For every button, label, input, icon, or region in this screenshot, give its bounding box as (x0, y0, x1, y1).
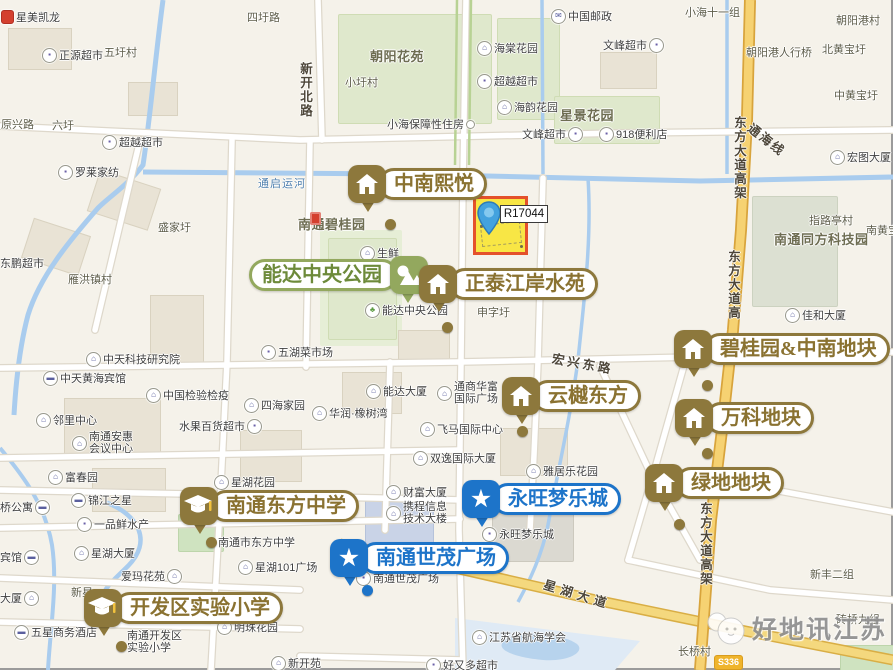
map-poi-label: ⌂海棠花园 (477, 40, 538, 56)
shop-icon: ▪ (77, 517, 92, 532)
building-icon: ⌂ (72, 436, 87, 451)
callout-nengda-central-park[interactable]: 能达中央公园 (249, 256, 428, 294)
callout-yunyue-dongfang[interactable]: 云樾东方 (502, 377, 641, 415)
map-poi-label: 小圩村 (345, 74, 378, 90)
callout-anchor-dot[interactable] (702, 448, 713, 459)
map-poi-label: ▪好又多超市 (426, 657, 498, 670)
callout-label: 正泰江岸水苑 (449, 268, 598, 300)
map-poi-label: ⌂携程信息技术大楼 (386, 502, 447, 525)
callout-label: 万科地块 (705, 402, 814, 434)
hotel-icon: ▬ (43, 371, 58, 386)
building-icon: ⌂ (472, 630, 487, 645)
map-poi-label: ⌂财富大厦 (386, 484, 447, 500)
map-poi-label: 原兴路 (1, 116, 34, 132)
red-icon (1, 10, 14, 24)
callout-yongwang-mengle-cheng[interactable]: ★永旺梦乐城 (462, 480, 621, 518)
road-name-label: 东方大道高 (728, 250, 741, 320)
map-poi-label: 申字圩 (477, 304, 510, 320)
shop-icon: ▪ (426, 658, 441, 670)
callout-label: 中南熙悦 (378, 168, 487, 200)
building-icon: ⌂ (24, 591, 39, 606)
watermark: 好地讯江苏 (704, 610, 887, 646)
map-area-label: 星景花园 (560, 105, 614, 124)
map-poi-label: ⌂双逸国际大厦 (413, 450, 496, 466)
map-poi-label: 四圩路 (247, 9, 280, 25)
callout-anchor-dot[interactable] (116, 641, 127, 652)
map-poi-label: ⌂富春园 (48, 469, 98, 485)
map-poi-label: ⌂宏图大厦 (830, 149, 891, 165)
building-icon: ⌂ (386, 506, 401, 521)
parcel-id-label: R17044 (500, 205, 548, 223)
map-poi-label: 雁洪镇村 (68, 271, 112, 287)
map-poi-label: 小海保障性住房 (387, 116, 475, 132)
map-poi-label: ⌂海韵花园 (497, 99, 558, 115)
building-icon: ⌂ (271, 656, 286, 670)
house-icon (502, 377, 540, 415)
callout-anchor-dot[interactable] (517, 426, 528, 437)
map-poi-label: ⌂江苏省航海学会 (472, 629, 566, 645)
map-poi-label: ⌂通商华富国际广场 (437, 382, 498, 405)
callout-nantong-dongfang-zhongxue[interactable]: 南通东方中学 (180, 487, 359, 525)
map-poi-label: 文峰超市▪ (522, 126, 583, 142)
road-name-label: 新开北路 (300, 62, 313, 118)
building-icon: ⌂ (830, 150, 845, 165)
map-poi-label: 小海十一组 (685, 4, 740, 20)
map-poi-label: ⌂雅居乐花园 (526, 463, 598, 479)
building-icon: ⌂ (312, 406, 327, 421)
building-icon: ⌂ (477, 41, 492, 56)
callout-anchor-dot[interactable] (362, 585, 373, 596)
building-icon: ⌂ (244, 398, 259, 413)
road-name-label: 东方大道高架 (700, 502, 713, 586)
map-poi-label: 朝阳港村 (836, 12, 880, 28)
map-poi-label: 中黄宝圩 (834, 87, 878, 103)
hotel-icon: ▬ (24, 550, 39, 565)
building-icon: ⌂ (386, 485, 401, 500)
building-icon: ⌂ (526, 464, 541, 479)
map-poi-label: ▬锦江之星 (71, 492, 132, 508)
house-icon (348, 165, 386, 203)
callout-anchor-dot[interactable] (674, 519, 685, 530)
building-icon: ⌂ (413, 451, 428, 466)
building-icon: ⌂ (420, 422, 435, 437)
map-poi-label: ▪超越超市 (477, 73, 538, 89)
map-poi-label: ⌂新开苑 (271, 655, 321, 670)
location-pin-icon[interactable] (477, 201, 501, 235)
map-poi-label: 桥公寓▬ (0, 499, 50, 515)
building-icon: ⌂ (36, 413, 51, 428)
graduation-cap-icon (84, 589, 122, 627)
star-icon: ★ (330, 539, 368, 577)
map-area-label: 朝阳花苑 (370, 46, 424, 65)
shop-icon: ▪ (477, 74, 492, 89)
building-icon: ⌂ (238, 560, 253, 575)
callout-zhengtai-jiangan-shuiyuan[interactable]: 正泰江岸水苑 (419, 265, 598, 303)
callout-anchor-dot[interactable] (385, 219, 396, 230)
map-poi-label: ⌂飞马国际中心 (420, 421, 503, 437)
building-icon: ⌂ (785, 308, 800, 323)
map-canvas[interactable]: R17044 S336 好地讯江苏 星美凯龙▪正源超市五圩村四圩路原兴路六圩▪超… (0, 0, 893, 670)
house-icon (419, 265, 457, 303)
callout-label: 南通世茂广场 (360, 542, 509, 574)
map-poi-label: ⌂佳和大厦 (785, 307, 846, 323)
building-icon: ⌂ (366, 384, 381, 399)
building-icon: ⌂ (74, 546, 89, 561)
map-poi-label: 南通市东方中学 (218, 534, 295, 550)
shop-icon: ▪ (102, 135, 117, 150)
map-poi-label: 盛家圩 (158, 219, 191, 235)
map-poi-label: ⌂南通安惠会议中心 (72, 432, 133, 455)
map-poi-label: 东鹏超市 (0, 255, 44, 271)
map-poi-label: ▪五湖菜市场 (261, 344, 333, 360)
callout-zhongnan-xiyue[interactable]: 中南熙悦 (348, 165, 487, 203)
star-icon: ★ (462, 480, 500, 518)
map-poi-label: ⌂四海家园 (244, 397, 305, 413)
callout-anchor-dot[interactable] (702, 380, 713, 391)
map-poi-label: ⌂邻里中心 (36, 412, 97, 428)
map-poi-label: 五圩村 (104, 44, 137, 60)
map-poi-label: ▪一品鲜水产 (77, 516, 149, 532)
house-icon (674, 330, 712, 368)
shop-icon: ▪ (58, 165, 73, 180)
callout-biguiyuan-zhongnan-dikuai[interactable]: 碧桂园&中南地块 (674, 330, 890, 368)
callout-kaifaqu-shiyan-xiaoxue[interactable]: 开发区实验小学 (84, 589, 283, 627)
shop-icon: ▪ (42, 48, 57, 63)
building-icon: ⌂ (437, 386, 452, 401)
map-area-label: 南通同方科技园 (774, 229, 869, 248)
map-poi-label: 朝阳港人行桥 (746, 44, 812, 60)
callout-label: 永旺梦乐城 (492, 483, 621, 515)
shop-icon: ▪ (649, 38, 664, 53)
map-poi-label: 大厦⌂ (0, 590, 39, 606)
map-poi-label: ⌂华润·橡树湾 (312, 405, 388, 421)
building-icon: ⌂ (146, 388, 161, 403)
building-icon: ⌂ (497, 100, 512, 115)
callout-label: 开发区实验小学 (114, 592, 283, 624)
callout-label: 碧桂园&中南地块 (704, 333, 890, 365)
dot-icon (466, 120, 475, 129)
map-poi-label: 新丰二组 (810, 566, 854, 582)
map-poi-label: 南通开发区实验小学 (127, 631, 182, 654)
map-poi-label: 星美凯龙 (1, 9, 60, 25)
callout-label: 云樾东方 (532, 380, 641, 412)
mail-icon: ✉ (551, 9, 566, 24)
building-icon: ⌂ (48, 470, 63, 485)
shop-icon: ▪ (261, 345, 276, 360)
hotel-icon: ▬ (14, 625, 29, 640)
shop-icon: ▪ (247, 419, 262, 434)
map-poi-label: ✉中国邮政 (551, 8, 612, 24)
map-poi-label: ⌂星湖101广场 (238, 559, 317, 575)
watermark-text: 好地讯江苏 (752, 610, 887, 646)
park-icon: ♣ (365, 303, 380, 318)
callout-label: 绿地地块 (675, 467, 784, 499)
map-poi-label: 文峰超市▪ (603, 37, 664, 53)
map-poi-label: ⌂能达大厦 (366, 383, 427, 399)
callout-wanke-dikuai[interactable]: 万科地块 (675, 399, 814, 437)
building-icon: ⌂ (167, 569, 182, 584)
map-area-label: 南通碧桂园 (298, 214, 366, 233)
map-poi-label: 爱玛花苑⌂ (121, 568, 182, 584)
hotel-icon: ▬ (71, 493, 86, 508)
map-poi-label: ⌂中国检验检疫 (146, 387, 229, 403)
map-poi-label: 宾馆▬ (0, 549, 39, 565)
map-poi-label: ⌂中天科技研究院 (86, 351, 180, 367)
hotel-icon: ▬ (35, 500, 50, 515)
map-poi-label: ▬中天黄海宾馆 (43, 370, 126, 386)
callout-anchor-dot[interactable] (442, 322, 453, 333)
callout-label: 能达中央公园 (249, 259, 398, 291)
road-name-label: 东方大道高架 (734, 116, 747, 200)
map-poi-label: 水果百货超市▪ (179, 418, 262, 434)
road-name-label: 通启运河 (258, 175, 306, 191)
callout-nantong-shimao-guangchang[interactable]: ★南通世茂广场 (330, 539, 509, 577)
callout-label: 南通东方中学 (210, 490, 359, 522)
callout-lvdi-dikuai[interactable]: 绿地地块 (645, 464, 784, 502)
map-poi-label: 六圩 (52, 117, 74, 133)
road-shield-s336: S336 (714, 655, 743, 670)
callout-anchor-dot[interactable] (206, 537, 217, 548)
graduation-cap-icon (180, 487, 218, 525)
house-icon (675, 399, 713, 437)
shop-icon: ▪ (599, 127, 614, 142)
map-poi-label: 指路亭村 (809, 212, 853, 228)
map-poi-label: ▪正源超市 (42, 47, 103, 63)
map-poi-label: ▪超越超市 (102, 134, 163, 150)
building-icon: ⌂ (86, 352, 101, 367)
map-poi-label: ⌂星湖大厦 (74, 545, 135, 561)
house-icon (645, 464, 683, 502)
brand-marker-icon (310, 212, 321, 225)
map-poi-label: 北黄宝圩 (822, 41, 866, 57)
shop-icon: ▪ (568, 127, 583, 142)
map-poi-label: ▪罗莱家纺 (58, 164, 119, 180)
map-poi-label: ▪918便利店 (599, 126, 667, 142)
watermark-logo-icon (704, 610, 748, 646)
map-poi-label: 南黄宝圩 (866, 222, 893, 238)
